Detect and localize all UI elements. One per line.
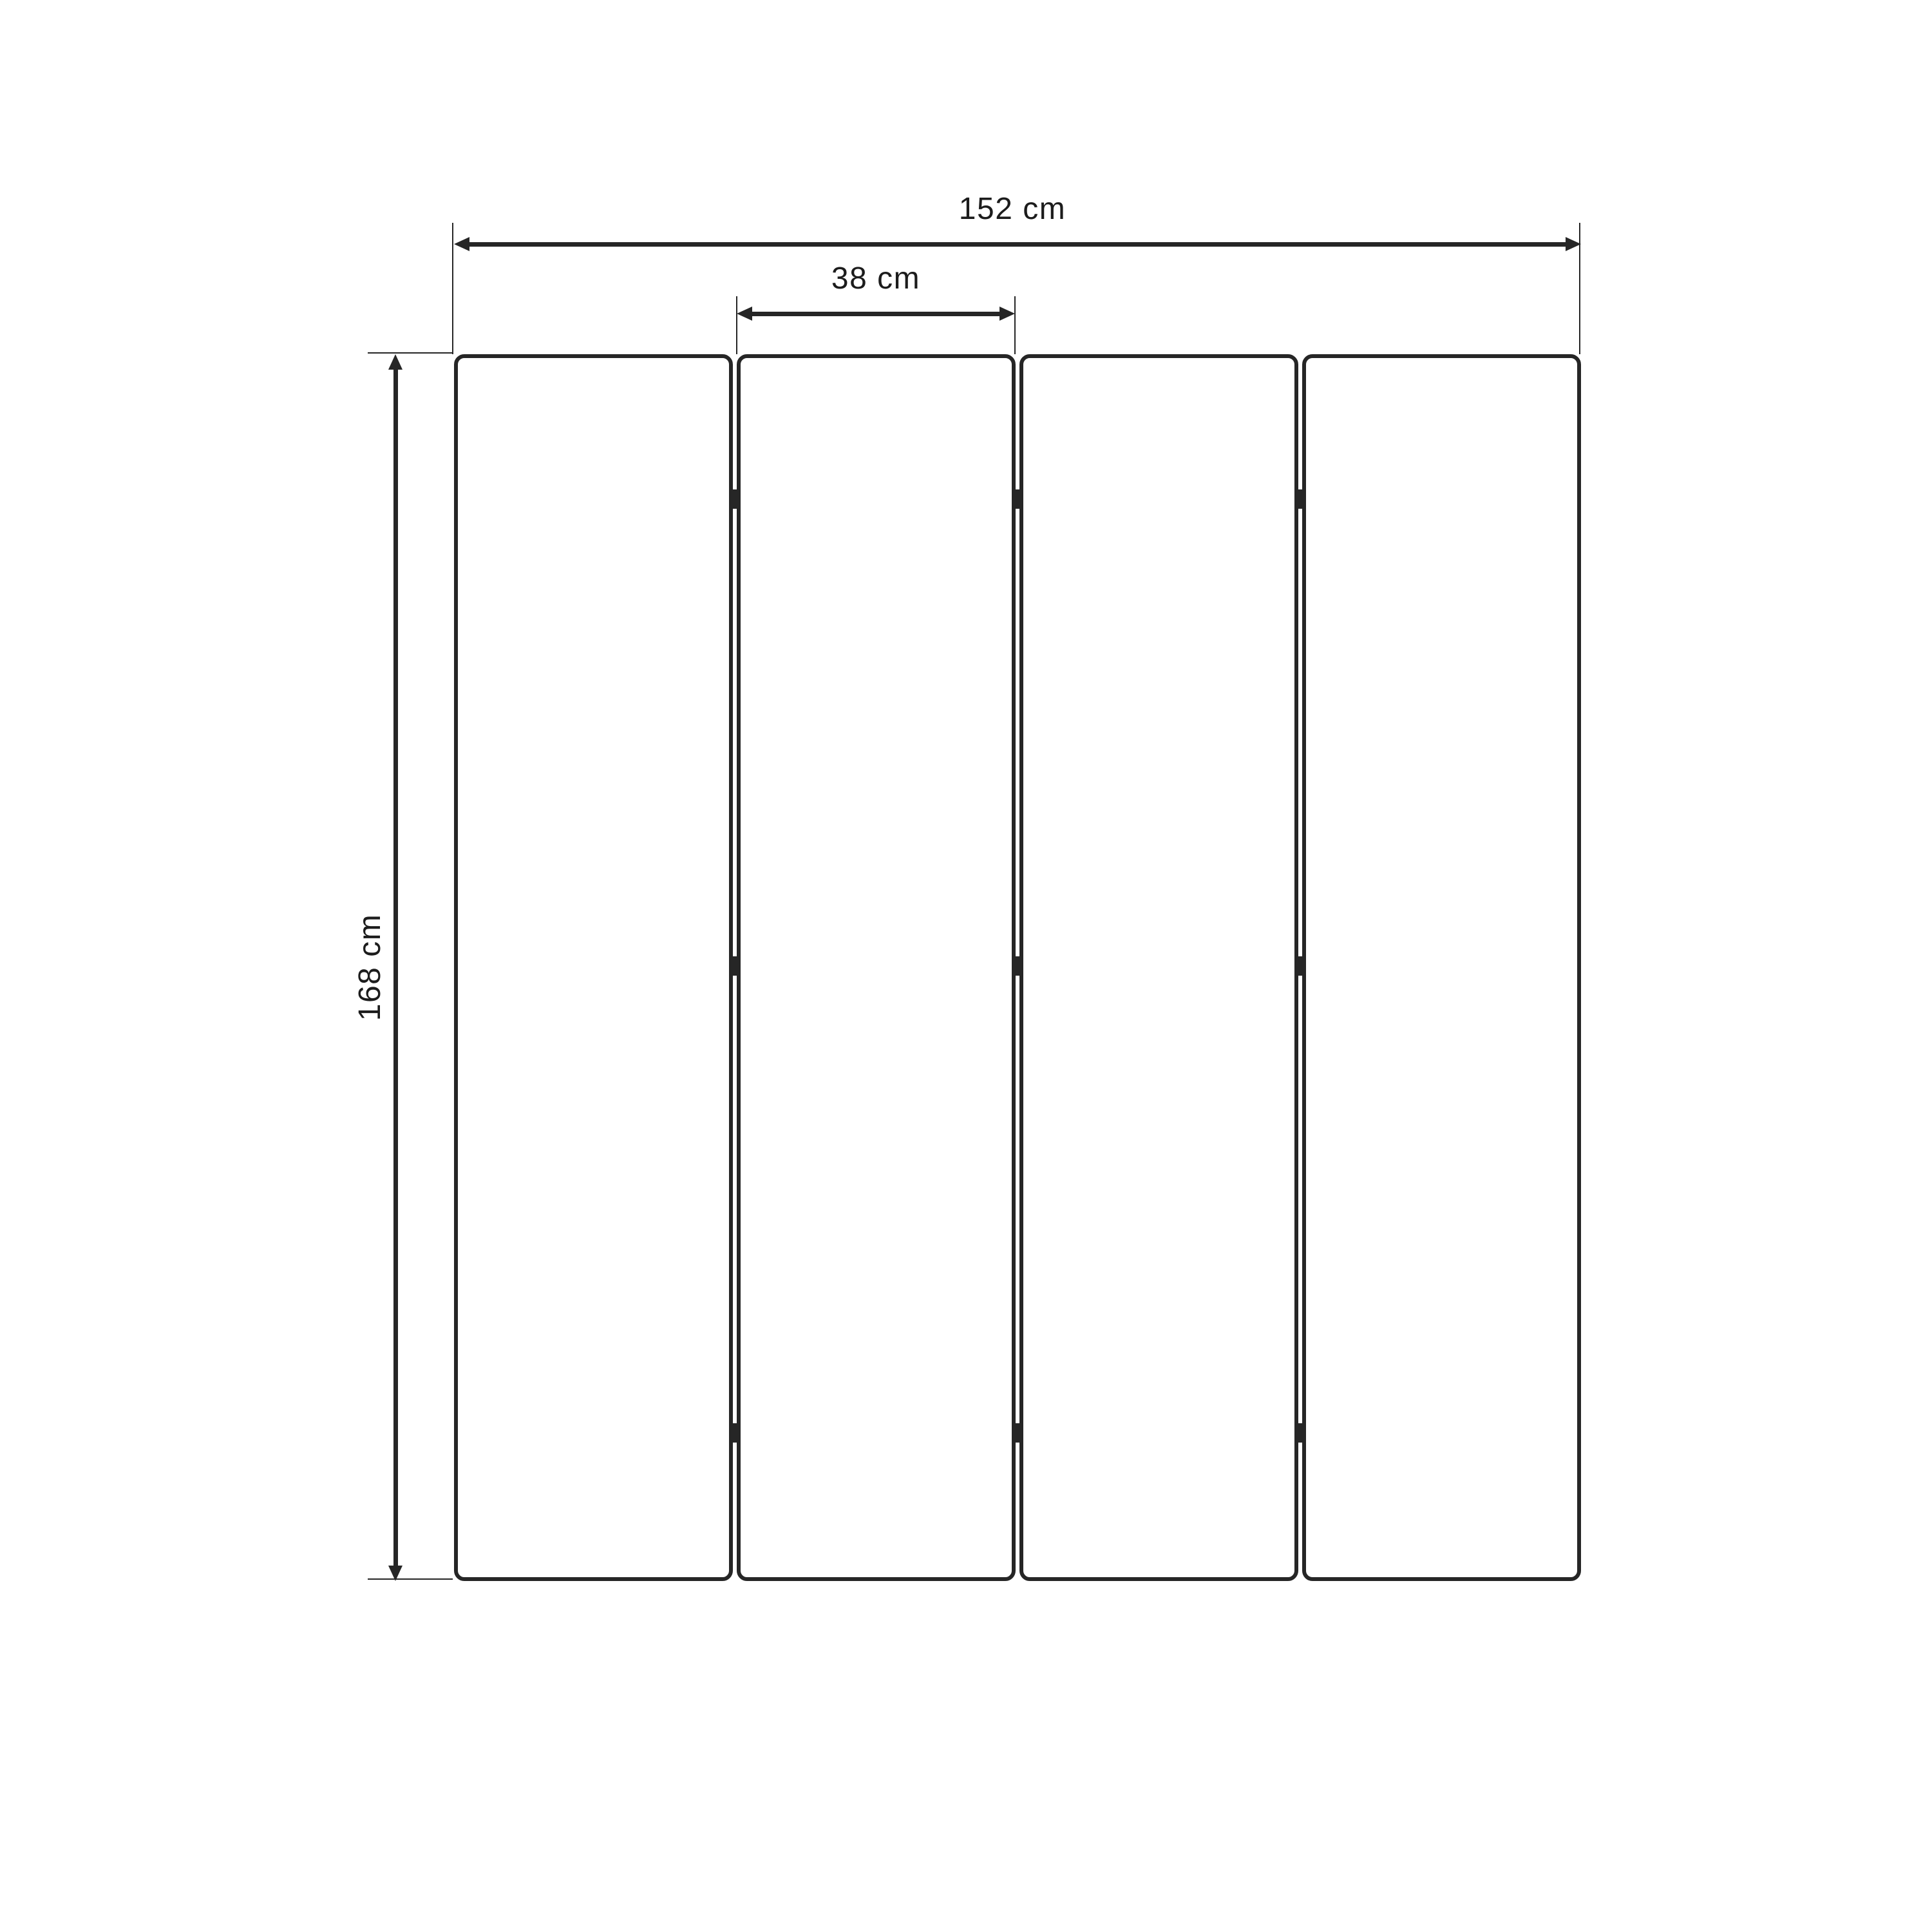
hinge-mark <box>1012 1423 1023 1443</box>
panel-1 <box>454 354 733 1581</box>
dimension-diagram: 152 cm 38 cm 168 cm <box>0 0 1932 1932</box>
extension-line <box>736 296 737 354</box>
total-width-label: 152 cm <box>959 191 1066 228</box>
panel-4 <box>1302 354 1581 1581</box>
panel-2 <box>737 354 1016 1581</box>
height-dimension-line <box>393 368 398 1567</box>
hinge-mark <box>1012 489 1023 509</box>
hinge-mark <box>1295 956 1305 976</box>
extension-line <box>368 352 453 354</box>
hinge-mark <box>1295 1423 1305 1443</box>
left-arrowhead-icon <box>737 307 752 321</box>
down-arrowhead-icon <box>388 1566 402 1581</box>
hinge-mark <box>730 956 740 976</box>
right-arrowhead-icon <box>999 307 1015 321</box>
right-arrowhead-icon <box>1566 237 1581 251</box>
extension-line <box>1014 296 1016 354</box>
extension-line <box>452 223 453 354</box>
up-arrowhead-icon <box>388 354 402 370</box>
hinge-mark <box>730 489 740 509</box>
total-width-dimension-line <box>468 242 1567 247</box>
panel-width-label: 38 cm <box>831 260 920 298</box>
extension-line <box>368 1578 453 1580</box>
panel-3 <box>1019 354 1298 1581</box>
left-arrowhead-icon <box>454 237 469 251</box>
hinge-mark <box>1295 489 1305 509</box>
hinge-mark <box>1012 956 1023 976</box>
panel-width-dimension-line <box>751 312 1001 316</box>
hinge-mark <box>730 1423 740 1443</box>
panel-height-label: 168 cm <box>352 914 389 1021</box>
